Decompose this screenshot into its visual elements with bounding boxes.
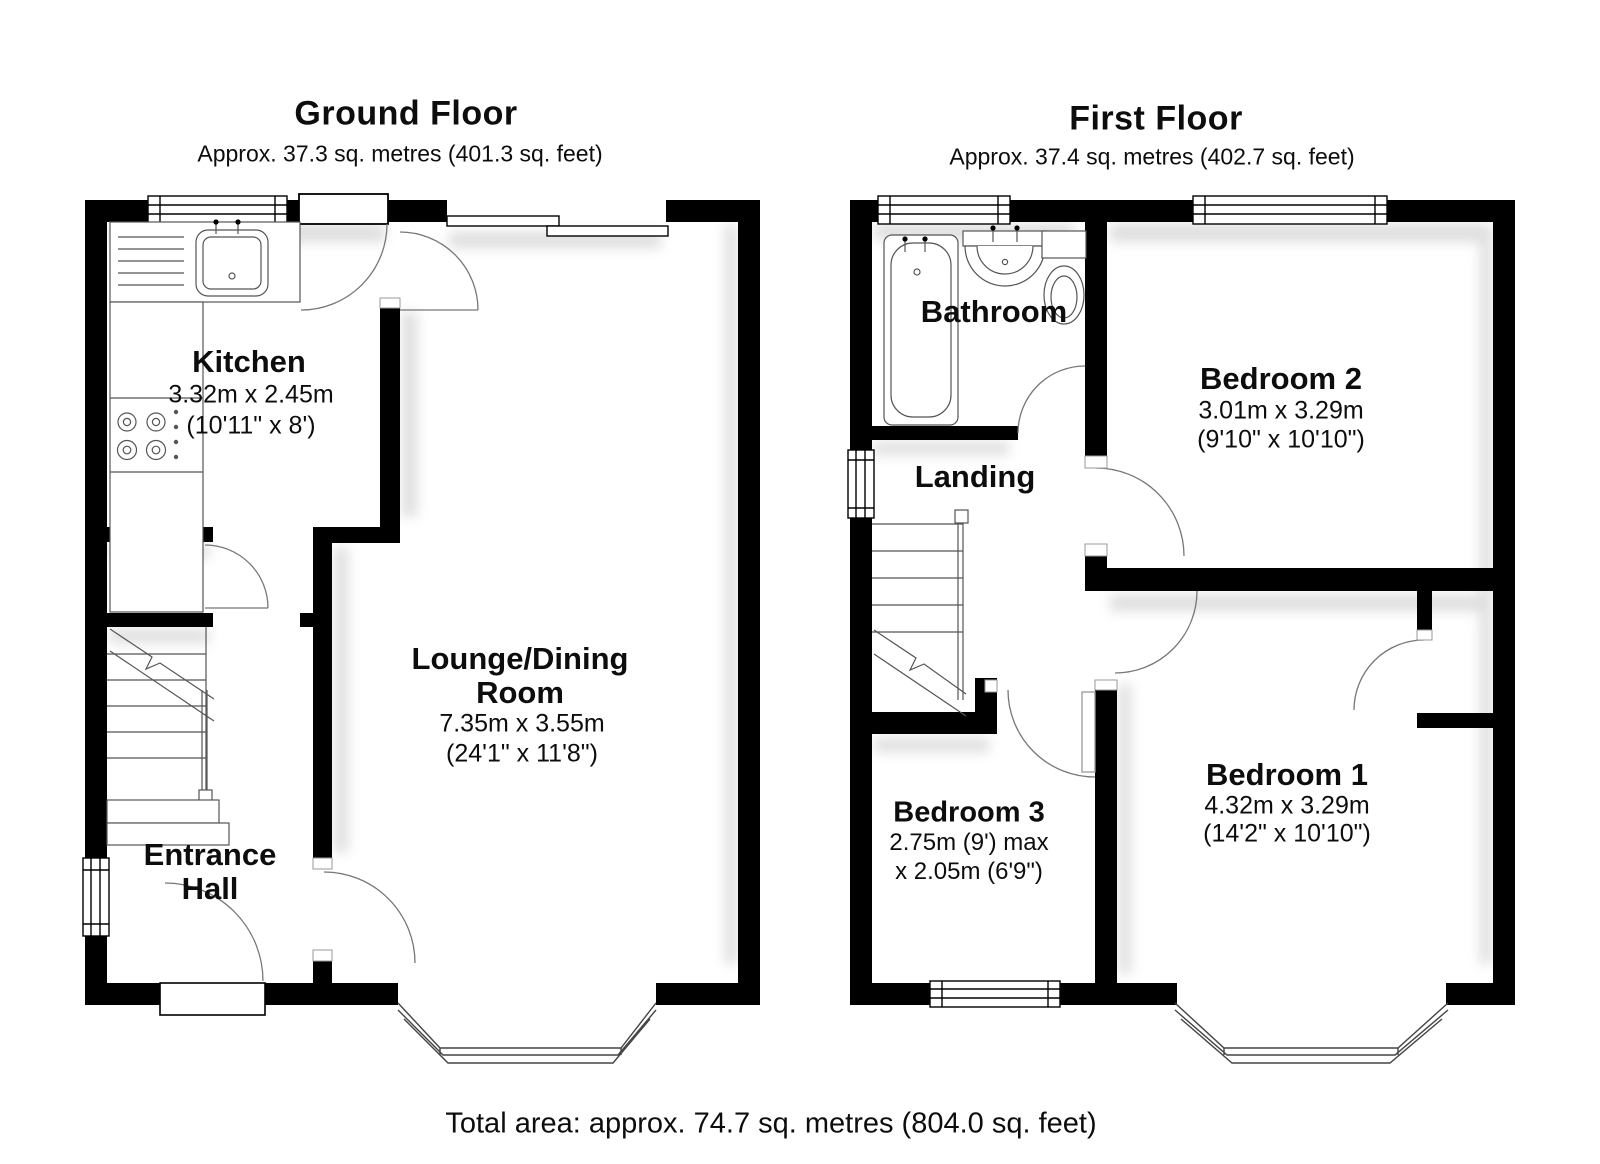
bottom-step [107,800,219,823]
cupboard-door [1354,640,1424,710]
bedroom2-dim-metric: 3.01m x 3.29m [1198,397,1363,426]
landing-window [848,450,874,518]
landing-label: Landing [915,459,1036,495]
wall [1493,200,1515,1005]
wall [85,200,152,222]
bedroom2-label: Bedroom 2 [1200,361,1362,397]
wall-bathroom-bedroom2 [1085,222,1107,456]
wall-bathroom [872,426,1018,440]
wall-bedroom3-bedroom1 [1095,680,1117,983]
kitchen-dim-imperial: (10'11" x 8') [186,412,315,441]
ground-floor-subtitle: Approx. 37.3 sq. metres (401.3 sq. feet) [197,141,602,168]
wall [1058,983,1177,1005]
first-floor-title: First Floor [1069,100,1243,139]
lounge-dim-imperial: (24'1" x 11'8") [446,740,598,769]
wall [1008,200,1197,222]
entrance-hall-label-line1: Entrance [144,837,277,873]
kitchen-dim-metric: 3.32m x 2.45m [168,381,333,410]
lounge-door [324,872,415,963]
bay-window [398,1003,656,1063]
kitchen-sink-icon [196,219,268,296]
total-area-label: Total area: approx. 74.7 sq. metres (804… [445,1108,1096,1141]
bedroom2-window [1193,196,1387,224]
bedroom2-dim-imperial: (9'10" x 10'10") [1197,426,1365,455]
wall [85,983,160,1005]
lounge-dim-metric: 7.35m x 3.55m [439,710,604,739]
kitchen-label: Kitchen [192,344,306,380]
wall [850,983,932,1005]
wall [313,527,400,543]
wall-bedroom1-bedroom2 [1085,568,1493,591]
kitchen-window [148,196,287,224]
wall [850,200,882,222]
bedroom3-dim-line2: x 2.05m (6'9") [895,858,1043,886]
bathroom-door [1018,366,1085,433]
wall [107,613,213,627]
entrance-hall-label-line2: Hall [182,871,239,907]
floorplan-page: { "page": { "background": "#ffffff", "wa… [0,0,1600,1164]
newel-post [955,510,968,523]
bedroom1-dim-imperial: (14'2" x 10'10") [1203,820,1371,849]
back-door [299,194,388,310]
wall-lounge-hall [313,543,332,868]
stairs-down [872,510,968,716]
wall-kitchen-lounge [380,308,400,530]
bedroom1-dim-metric: 4.32m x 3.29m [1204,792,1369,821]
hall-kitchen-door [205,545,268,608]
bedroom3-label: Bedroom 3 [893,797,1044,830]
stairs-break-line [874,654,966,716]
bedroom3-door [1008,690,1095,777]
first-floor-subtitle: Approx. 37.4 sq. metres (402.7 sq. feet) [949,144,1354,171]
lounge-label-line2: Room [476,675,564,711]
wall [1446,983,1515,1005]
ground-floor-title: Ground Floor [294,95,517,134]
bathroom-window [878,196,1010,224]
wall [300,613,313,627]
ground-floor-plan [80,190,770,1080]
wall [313,961,332,985]
wall [850,200,872,1005]
wall-cupboard [1417,713,1493,728]
hall-window [83,858,109,936]
ground-floor-svg [80,190,770,1080]
bay-window [1175,1003,1448,1063]
wall [738,200,760,1005]
wall-bedroom3 [872,712,997,734]
basin-icon [963,225,1047,286]
bedroom3-dim-line1: 2.75m (9') max [889,829,1048,857]
wall [656,983,760,1005]
bathtub-icon [884,235,958,425]
wall [385,200,447,222]
bedroom3-window [930,981,1060,1007]
bathroom-label: Bathroom [921,294,1067,330]
wall-cupboard [1417,591,1432,630]
stairs-up [107,627,229,845]
bedroom1-label: Bedroom 1 [1206,757,1368,793]
lounge-label-line1: Lounge/Dining [412,641,629,677]
wall [265,983,398,1005]
stairs-break-line [110,651,214,721]
bedroom2-door [1096,468,1184,556]
